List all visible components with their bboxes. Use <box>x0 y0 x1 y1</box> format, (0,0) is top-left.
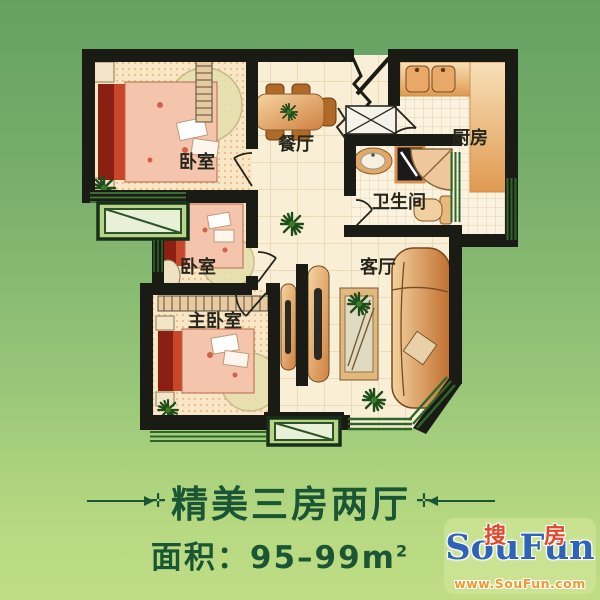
logo-cn-sou: 搜 <box>484 518 506 550</box>
label-bedroom2: 卧室 <box>180 256 216 278</box>
logo-cn-fang: 房 <box>544 518 566 550</box>
coffee-table <box>340 288 378 380</box>
bay-window <box>98 203 188 239</box>
area-label: 面积： <box>151 540 250 576</box>
right-arrow-decoration: ✛ <box>411 492 495 511</box>
label-master-bedroom: 主卧室 <box>188 310 242 332</box>
logo-wordmark: SouFun <box>444 530 596 565</box>
area-superscript: 2 <box>396 542 409 561</box>
wardrobe-bedroom1 <box>196 60 212 122</box>
logo-url: www.SouFun.com <box>444 576 596 591</box>
bathroom-sink <box>354 148 392 174</box>
corridor-window <box>268 418 340 445</box>
label-bedroom1: 卧室 <box>179 151 215 173</box>
label-living: 客厅 <box>360 256 396 278</box>
left-arrow-decoration: ✛ <box>87 492 171 511</box>
area-value: 95–99m <box>250 540 396 576</box>
plan-title: 精美三房两厅 <box>171 474 411 528</box>
storage-cabinet <box>337 106 396 138</box>
label-kitchen: 厨房 <box>452 127 488 149</box>
floorplan-image: 卧室 餐厅 厨房 卫生间 卧室 客厅 主卧室 <box>0 0 600 474</box>
label-dining: 餐厅 <box>277 133 314 155</box>
wardrobe-master <box>158 296 276 311</box>
soufun-logo: 搜 房 SouFun www.SouFun.com <box>444 518 596 594</box>
label-bathroom: 卫生间 <box>372 191 426 213</box>
soufun-floorplan-page: { "floorplan": { "rooms": { "bedroom1": … <box>0 0 600 600</box>
